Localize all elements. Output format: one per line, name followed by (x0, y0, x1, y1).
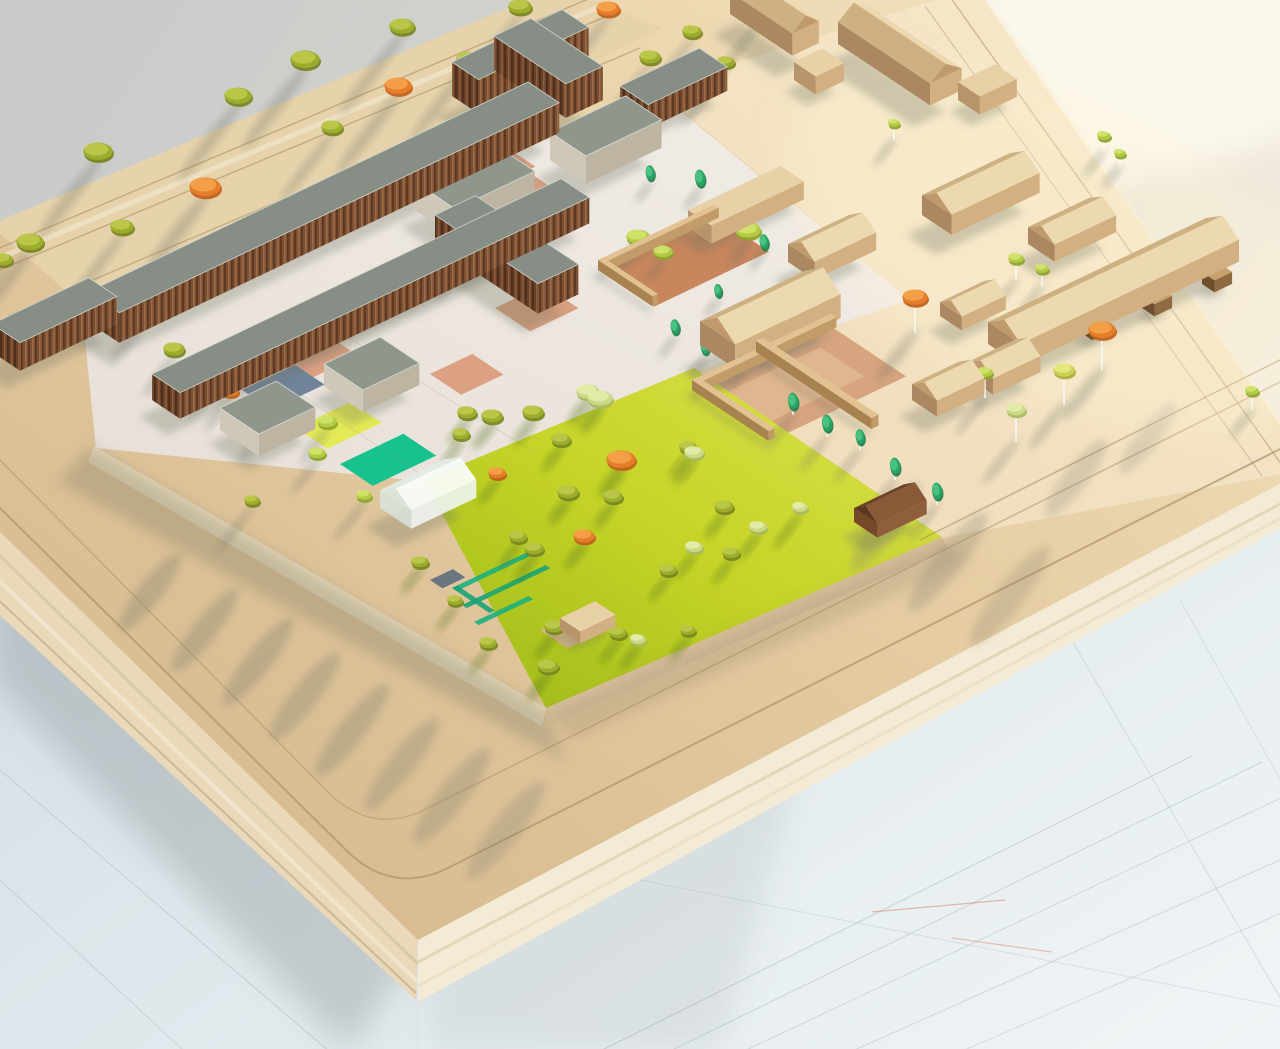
tree-canopy (722, 547, 736, 555)
tree-canopy (85, 143, 109, 156)
tree-canopy (482, 409, 500, 418)
tree-canopy (1089, 322, 1111, 334)
tree-canopy (574, 529, 592, 538)
tree-canopy (888, 119, 898, 124)
tree-canopy (111, 220, 130, 230)
tree-canopy (640, 50, 658, 59)
tree-canopy (488, 467, 502, 475)
tree-canopy (903, 290, 924, 301)
tree-canopy (385, 78, 407, 90)
tree-canopy (792, 502, 805, 509)
tree-canopy (749, 521, 763, 529)
tree-canopy (1035, 264, 1046, 270)
tree-canopy (1097, 131, 1108, 137)
tree-canopy (479, 637, 493, 645)
tree-canopy (1245, 386, 1256, 392)
tree-canopy (715, 500, 731, 508)
tree-canopy (318, 415, 334, 423)
tree-canopy (356, 490, 369, 497)
tree-canopy (1008, 253, 1021, 260)
tree-canopy (411, 556, 425, 564)
tree-canopy (164, 342, 182, 351)
tree-canopy (390, 19, 411, 30)
tree-canopy (630, 634, 643, 641)
tree-canopy (244, 495, 257, 502)
tree-canopy (191, 178, 217, 191)
tree-canopy (627, 230, 646, 240)
tree-canopy (685, 446, 701, 454)
tree-canopy (597, 2, 616, 12)
model-scene (0, 0, 1280, 1049)
tree-canopy (523, 405, 541, 414)
tree-canopy (545, 620, 561, 628)
tree-canopy (447, 595, 460, 602)
tree-canopy (683, 25, 699, 33)
tree-canopy (552, 433, 568, 441)
tree-canopy (458, 406, 474, 414)
tree-canopy (685, 541, 699, 549)
tree-canopy (608, 451, 632, 464)
tree-canopy (525, 542, 541, 550)
tree-canopy (322, 120, 340, 129)
tree-canopy (292, 51, 316, 64)
tree-canopy (558, 485, 576, 494)
tree-canopy (680, 625, 693, 632)
tree-canopy (452, 428, 466, 436)
tree-canopy (538, 659, 556, 668)
tree-canopy (17, 234, 39, 246)
tree-canopy (604, 490, 620, 498)
tree-canopy (225, 88, 247, 100)
tree-canopy (1114, 149, 1124, 154)
tree-canopy (308, 447, 322, 455)
tree-canopy (1054, 363, 1072, 372)
tree-canopy (588, 391, 609, 402)
studio-photo-of-architectural-model (0, 0, 1280, 1049)
tree-canopy (659, 564, 673, 572)
tree-canopy (1007, 403, 1023, 411)
tree-canopy (509, 0, 528, 10)
tree-canopy (509, 531, 523, 539)
